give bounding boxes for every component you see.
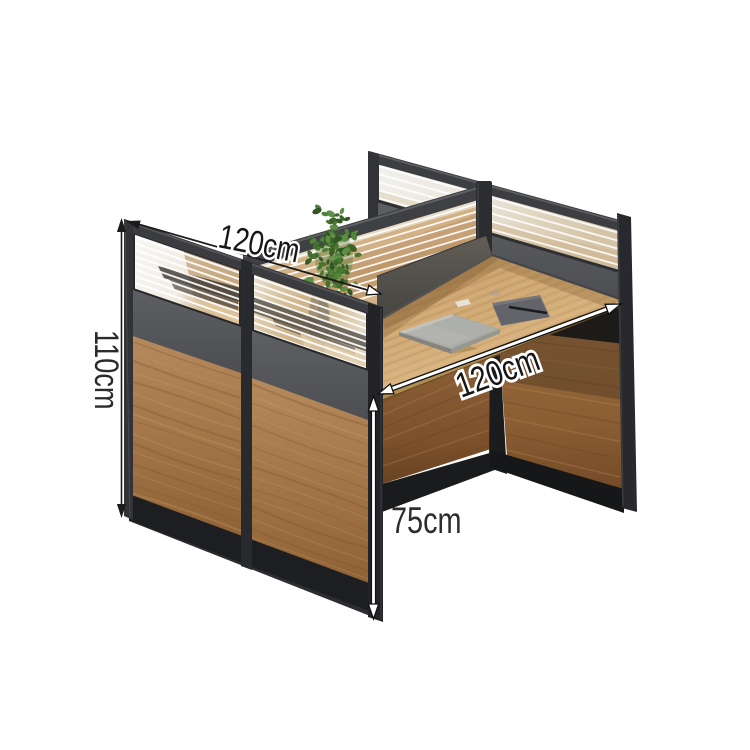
svg-text:110cm: 110cm — [87, 330, 126, 410]
svg-text:75cm: 75cm — [391, 501, 462, 542]
